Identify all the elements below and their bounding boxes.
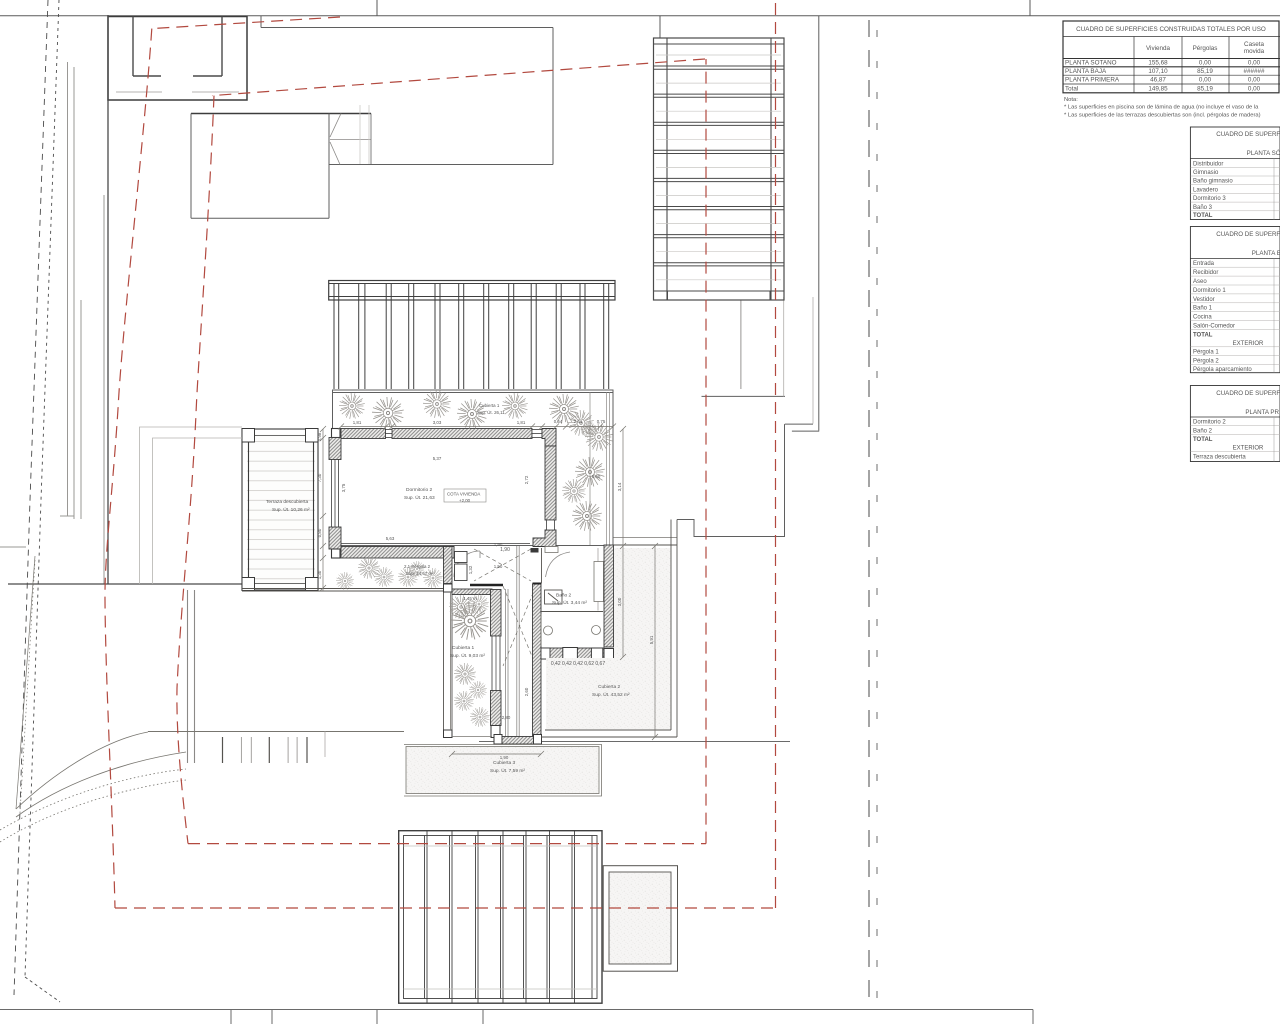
svg-text:Dormitorio 3: Dormitorio 3 xyxy=(1193,196,1226,202)
svg-text:######: ###### xyxy=(1243,68,1265,75)
svg-text:0,42 0,42 0,42 0,62 0,67: 0,42 0,42 0,42 0,62 0,67 xyxy=(551,661,605,667)
svg-text:Terraza descubierta: Terraza descubierta xyxy=(1193,454,1246,460)
svg-text:* Las superficies en piscina s: * Las superficies en piscina son de lámi… xyxy=(1064,105,1259,111)
svg-text:5,91: 5,91 xyxy=(649,635,654,644)
svg-text:Cubierta 3: Cubierta 3 xyxy=(493,760,515,766)
svg-text:PLANTA SÓTANO: PLANTA SÓTANO xyxy=(1247,150,1280,157)
svg-text:Cubierta 1: Cubierta 1 xyxy=(452,645,474,651)
svg-text:Pérgola aparcamiento: Pérgola aparcamiento xyxy=(1193,367,1252,373)
svg-text:Baño 3: Baño 3 xyxy=(1193,205,1213,211)
svg-text:5,37: 5,37 xyxy=(433,456,442,461)
svg-text:7,30: 7,30 xyxy=(317,473,322,482)
svg-text:Entrada: Entrada xyxy=(1193,261,1215,267)
svg-text:85,19: 85,19 xyxy=(1197,85,1213,92)
svg-text:movida: movida xyxy=(1244,48,1265,55)
svg-text:Terraza descubierta: Terraza descubierta xyxy=(266,499,308,505)
svg-text:CUADRO DE SUPERFICIES CONSTRUI: CUADRO DE SUPERFICIES CONSTRUIDAS TOTALE… xyxy=(1076,26,1266,33)
svg-text:Dormitorio 2: Dormitorio 2 xyxy=(406,487,432,493)
svg-text:Caseta: Caseta xyxy=(1244,41,1264,48)
svg-text:Salón-Comedor: Salón-Comedor xyxy=(1193,324,1235,330)
svg-text:Cubierta 1: Cubierta 1 xyxy=(479,403,500,408)
svg-text:Recibidor: Recibidor xyxy=(1193,270,1218,276)
svg-text:Sup. Út. 26,11: Sup. Út. 26,11 xyxy=(477,410,505,415)
svg-text:2,72: 2,72 xyxy=(524,475,529,484)
svg-text:1,81: 1,81 xyxy=(353,420,362,425)
svg-text:Vivienda: Vivienda xyxy=(1146,45,1171,52)
svg-text:COTA VIVIENDA: COTA VIVIENDA xyxy=(447,492,480,497)
svg-text:3,03: 3,03 xyxy=(433,420,442,425)
svg-text:Pérgola 1: Pérgola 1 xyxy=(1193,350,1219,356)
svg-text:1,30: 1,30 xyxy=(317,570,322,579)
svg-text:Dormitorio 2: Dormitorio 2 xyxy=(1193,420,1226,426)
svg-text:Nota:: Nota: xyxy=(1064,97,1078,103)
svg-text:3,14: 3,14 xyxy=(617,482,622,491)
svg-text:CUADRO DE SUPERFICIES ÚTILES: CUADRO DE SUPERFICIES ÚTILES xyxy=(1216,131,1280,138)
svg-text:Baño 2: Baño 2 xyxy=(556,593,572,599)
svg-text:Total: Total xyxy=(1065,85,1078,92)
svg-text:TOTAL: TOTAL xyxy=(1193,332,1213,338)
svg-text:Baño 1: Baño 1 xyxy=(1193,306,1213,312)
svg-text:Baño gimnasio: Baño gimnasio xyxy=(1193,179,1233,185)
svg-text:0,98: 0,98 xyxy=(317,432,322,441)
svg-text:PLANTA PRIMERA: PLANTA PRIMERA xyxy=(1065,77,1120,84)
svg-text:Gimnasio: Gimnasio xyxy=(1193,170,1219,176)
svg-text:Pérgolas: Pérgolas xyxy=(1193,45,1218,52)
svg-text:Sup. Út. 43,52 m²: Sup. Út. 43,52 m² xyxy=(592,691,630,698)
svg-text:Vestidor: Vestidor xyxy=(1193,297,1215,303)
svg-text:PLANTA SOTANO: PLANTA SOTANO xyxy=(1065,60,1117,67)
svg-text:2,60: 2,60 xyxy=(524,687,529,696)
svg-text:0,80: 0,80 xyxy=(317,528,322,537)
svg-text:0,00: 0,00 xyxy=(1199,77,1212,84)
svg-text:1,50: 1,50 xyxy=(494,564,503,569)
svg-text:0,00: 0,00 xyxy=(1248,60,1261,67)
svg-text:1,45 m: 1,45 m xyxy=(463,596,477,601)
svg-text:0,00: 0,00 xyxy=(1199,60,1212,67)
svg-text:TOTAL: TOTAL xyxy=(1193,213,1213,219)
svg-text:Distribuidor: Distribuidor xyxy=(1193,161,1223,167)
svg-text:Cocina: Cocina xyxy=(1193,315,1212,321)
svg-text:* Las superficies de las terra: * Las superficies de las terrazas descub… xyxy=(1064,112,1261,118)
svg-text:Sup. Út. 7,59 m²: Sup. Út. 7,59 m² xyxy=(490,767,525,774)
svg-text:EXTERIOR: EXTERIOR xyxy=(1233,445,1264,451)
svg-text:EXTERIOR: EXTERIOR xyxy=(1233,341,1264,347)
svg-text:Dormitorio 1: Dormitorio 1 xyxy=(1193,288,1226,294)
svg-text:PLANTA BAJA: PLANTA BAJA xyxy=(1252,250,1280,257)
svg-text:0,54: 0,54 xyxy=(554,419,563,424)
svg-text:149,85: 149,85 xyxy=(1148,85,1168,92)
svg-text:1,90: 1,90 xyxy=(500,755,509,760)
svg-text:1,81: 1,81 xyxy=(517,420,526,425)
svg-text:+2,00: +2,00 xyxy=(459,498,471,503)
svg-text:PLANTA PRIMERA: PLANTA PRIMERA xyxy=(1245,409,1280,416)
svg-text:Aseo: Aseo xyxy=(1193,279,1207,285)
svg-text:5,63: 5,63 xyxy=(386,536,395,541)
svg-text:85,19: 85,19 xyxy=(1197,68,1213,75)
svg-text:0,00: 0,00 xyxy=(1248,77,1261,84)
svg-text:Sup. Út. 9,03 m²: Sup. Út. 9,03 m² xyxy=(450,652,485,659)
svg-text:3,75: 3,75 xyxy=(341,483,346,492)
svg-text:0,00: 0,00 xyxy=(1248,85,1261,92)
svg-text:Sup. Út. 21,63: Sup. Út. 21,63 xyxy=(404,494,435,501)
svg-text:TOTAL: TOTAL xyxy=(1193,437,1213,443)
svg-text:155,68: 155,68 xyxy=(1148,60,1168,67)
svg-text:2,80: 2,80 xyxy=(502,715,511,720)
svg-text:0,60: 0,60 xyxy=(592,474,601,479)
svg-text:CUADRO DE SUPERFICIES ÚTILES: CUADRO DE SUPERFICIES ÚTILES xyxy=(1216,390,1280,397)
svg-text:1,90: 1,90 xyxy=(500,547,510,553)
svg-text:Cubierta 2: Cubierta 2 xyxy=(598,684,620,690)
svg-text:2.1 Pérgola 2: 2.1 Pérgola 2 xyxy=(404,564,431,569)
svg-text:PLANTA BAJA: PLANTA BAJA xyxy=(1065,68,1107,75)
svg-text:Lavadero: Lavadero xyxy=(1193,187,1219,193)
svg-text:2,41: 2,41 xyxy=(574,419,583,424)
svg-text:1,32: 1,32 xyxy=(468,565,473,574)
svg-text:Baño 2: Baño 2 xyxy=(1193,428,1213,434)
svg-text:Sup. Út. 10,26 m²: Sup. Út. 10,26 m² xyxy=(272,506,310,513)
svg-text:46,87: 46,87 xyxy=(1150,77,1166,84)
svg-text:Sup. Út. 3,44 m²: Sup. Út. 3,44 m² xyxy=(552,599,587,606)
svg-text:CUADRO DE SUPERFICIES ÚTILES: CUADRO DE SUPERFICIES ÚTILES xyxy=(1216,231,1280,238)
svg-text:107,10: 107,10 xyxy=(1148,68,1168,75)
svg-text:Pérgola 2: Pérgola 2 xyxy=(1193,359,1219,365)
svg-text:Sup. 24,67 m²: Sup. 24,67 m² xyxy=(406,571,434,576)
svg-text:3,00: 3,00 xyxy=(617,597,622,606)
svg-text:0,75: 0,75 xyxy=(597,419,606,424)
